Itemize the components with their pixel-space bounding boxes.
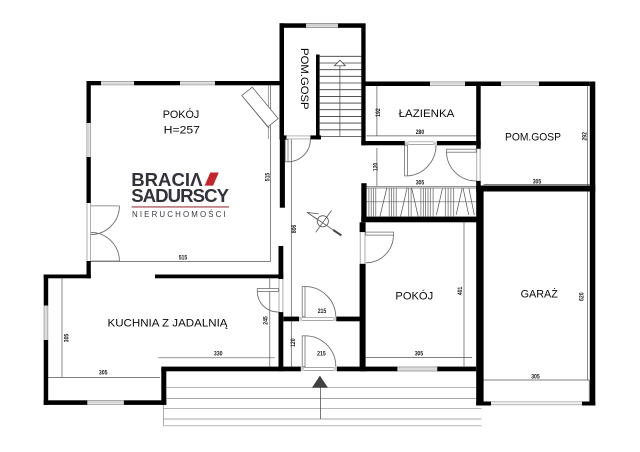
svg-text:305: 305	[415, 352, 424, 358]
svg-text:120: 120	[374, 162, 380, 171]
svg-text:305: 305	[533, 180, 542, 186]
svg-text:305: 305	[416, 181, 425, 187]
svg-text:215: 215	[317, 352, 326, 358]
svg-text:192: 192	[376, 108, 382, 117]
svg-text:ŁAZIENKA: ŁAZIENKA	[399, 108, 455, 120]
svg-text:SADURSCY: SADURSCY	[131, 185, 229, 206]
svg-text:620: 620	[580, 292, 586, 301]
svg-text:515: 515	[266, 172, 272, 181]
svg-text:292: 292	[583, 131, 589, 140]
svg-text:330: 330	[214, 352, 223, 358]
svg-text:305: 305	[531, 375, 540, 381]
svg-text:NIERUCHOMOŚCI: NIERUCHOMOŚCI	[132, 210, 228, 219]
svg-text:305: 305	[99, 371, 108, 377]
svg-text:245: 245	[263, 316, 269, 325]
svg-text:GARAŻ: GARAŻ	[521, 287, 558, 300]
svg-text:515: 515	[179, 255, 188, 261]
svg-text:POKÓJ: POKÓJ	[163, 108, 200, 121]
svg-text:280: 280	[416, 130, 425, 136]
svg-text:120: 120	[291, 338, 297, 347]
svg-text:POM.GOSP: POM.GOSP	[298, 48, 310, 110]
svg-text:KUCHNIA Z JADALNIĄ: KUCHNIA Z JADALNIĄ	[108, 318, 228, 330]
svg-text:401: 401	[458, 286, 464, 295]
svg-text:305: 305	[64, 333, 70, 342]
svg-text:POKÓJ: POKÓJ	[395, 289, 433, 302]
svg-text:215: 215	[318, 309, 327, 315]
svg-text:806: 806	[292, 224, 298, 233]
svg-text:POM.GOSP: POM.GOSP	[505, 131, 561, 143]
svg-text:H=257: H=257	[164, 124, 200, 136]
